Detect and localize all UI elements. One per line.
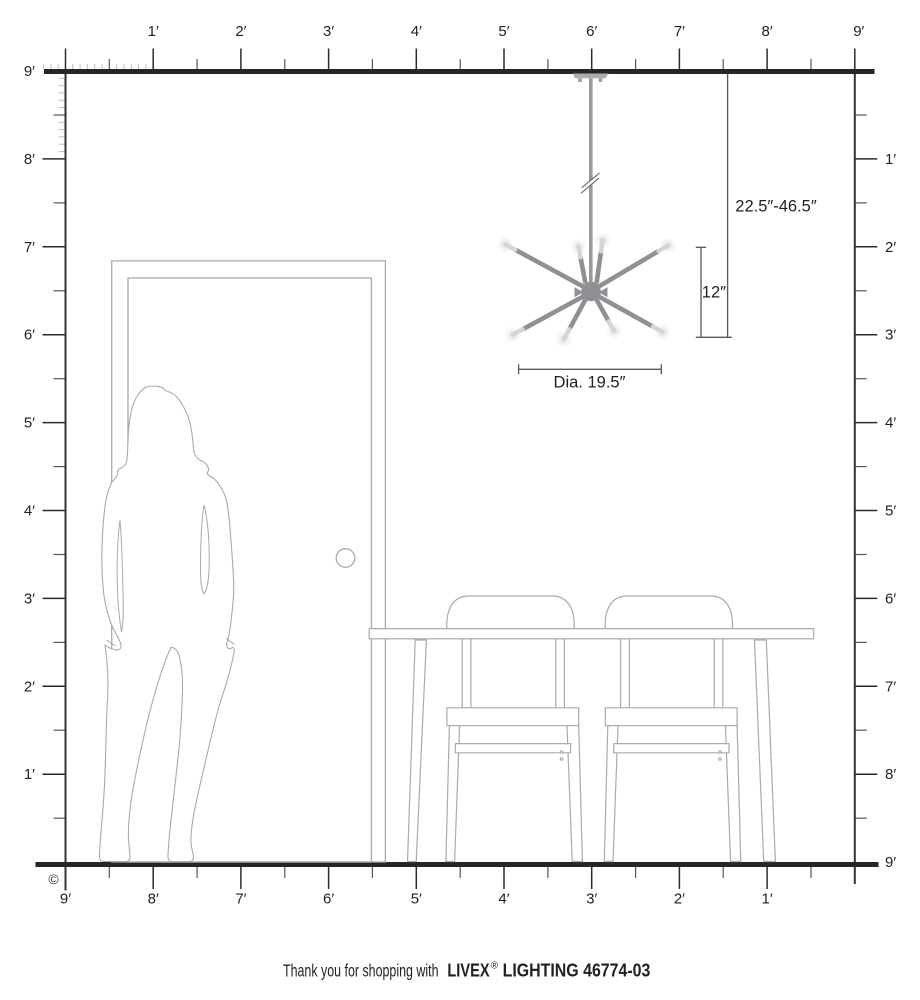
svg-text:9′: 9′ <box>885 854 896 871</box>
svg-text:7′: 7′ <box>24 239 35 256</box>
svg-text:4′: 4′ <box>411 23 422 40</box>
svg-text:5′: 5′ <box>885 503 896 520</box>
svg-text:9′: 9′ <box>24 63 35 80</box>
svg-text:©: © <box>48 871 59 887</box>
svg-text:3′: 3′ <box>586 891 597 908</box>
svg-text:LIGHTING 46774-03: LIGHTING 46774-03 <box>503 960 651 981</box>
svg-text:6′: 6′ <box>885 590 896 607</box>
svg-text:3′: 3′ <box>323 23 334 40</box>
svg-text:LIVEX: LIVEX <box>447 960 490 981</box>
svg-text:1′: 1′ <box>148 23 159 40</box>
svg-text:3′: 3′ <box>24 590 35 607</box>
svg-text:6′: 6′ <box>24 327 35 344</box>
svg-text:Dia. 19.5″: Dia. 19.5″ <box>554 374 626 392</box>
svg-text:5′: 5′ <box>411 891 422 908</box>
svg-text:12″: 12″ <box>702 283 726 301</box>
svg-text:1′: 1′ <box>24 766 35 783</box>
svg-text:4′: 4′ <box>498 891 509 908</box>
svg-text:5′: 5′ <box>498 23 509 40</box>
svg-text:7′: 7′ <box>674 23 685 40</box>
svg-text:Thank you for shopping with: Thank you for shopping with <box>283 961 439 981</box>
svg-text:®: ® <box>491 961 499 972</box>
svg-text:8′: 8′ <box>148 891 159 908</box>
svg-text:8′: 8′ <box>885 766 896 783</box>
svg-text:3′: 3′ <box>885 327 896 344</box>
svg-text:4′: 4′ <box>24 503 35 520</box>
svg-text:2′: 2′ <box>674 891 685 908</box>
svg-text:2′: 2′ <box>885 239 896 256</box>
svg-text:9′: 9′ <box>853 23 864 40</box>
svg-text:1′: 1′ <box>762 891 773 908</box>
svg-text:5′: 5′ <box>24 415 35 432</box>
svg-text:6′: 6′ <box>323 891 334 908</box>
svg-text:7′: 7′ <box>235 891 246 908</box>
svg-text:9′: 9′ <box>60 891 71 908</box>
svg-text:2′: 2′ <box>235 23 246 40</box>
svg-text:4′: 4′ <box>885 415 896 432</box>
svg-text:2′: 2′ <box>24 678 35 695</box>
svg-text:1′: 1′ <box>885 151 896 168</box>
svg-text:8′: 8′ <box>24 151 35 168</box>
svg-text:8′: 8′ <box>762 23 773 40</box>
svg-text:22.5″-46.5″: 22.5″-46.5″ <box>735 198 817 216</box>
svg-text:6′: 6′ <box>586 23 597 40</box>
svg-text:7′: 7′ <box>885 678 896 695</box>
